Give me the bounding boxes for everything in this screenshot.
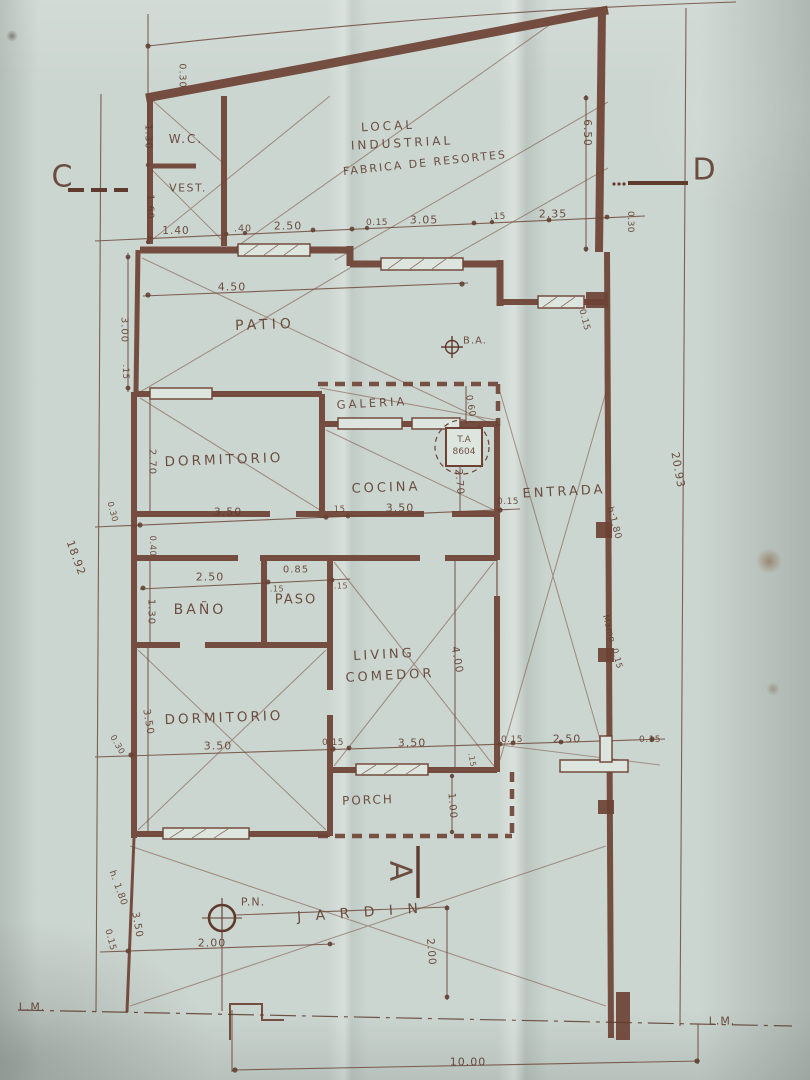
dimension-wc-height: 1.30 bbox=[143, 124, 154, 149]
dimension-vest-width: 1.40 bbox=[162, 225, 189, 237]
room-label-living-line1: LIVING bbox=[353, 646, 415, 664]
dimension-front-015a: 0.15 bbox=[366, 218, 388, 228]
dimension-front-015b: .15 bbox=[490, 212, 506, 222]
section-marker-d: D bbox=[692, 153, 715, 188]
dimension-living-width: 3.50 bbox=[398, 737, 427, 750]
dimension-patio-height: 3.00 bbox=[119, 317, 130, 343]
dimension-local-305: 3.05 bbox=[410, 214, 439, 227]
symbol-label-pn: P.N. bbox=[241, 896, 265, 909]
room-label-porch: PORCH bbox=[342, 792, 394, 808]
dimension-bottom-015a: 0.15 bbox=[322, 738, 344, 748]
dimension-top-left-030: 0.30 bbox=[177, 63, 188, 88]
room-label-patio: PATIO bbox=[235, 316, 295, 334]
section-marker-c: C bbox=[52, 160, 73, 195]
blueprint-sheet: W.C.VEST.LOCALINDUSTRIALFABRICA DE RESOR… bbox=[0, 0, 810, 1080]
room-label-paso: PASO bbox=[275, 593, 317, 608]
dimension-pn-offset-y: 2.00 bbox=[424, 938, 438, 966]
property-line-label-lm-left: L.M. bbox=[19, 1001, 46, 1014]
dimension-patio-width: 4.50 bbox=[218, 281, 247, 294]
dimension-bottom-015c: 0.15 bbox=[639, 735, 661, 745]
dimension-cocina-015: 0.15 bbox=[497, 497, 519, 507]
room-label-bano: BAÑO bbox=[174, 602, 227, 618]
dimension-dorm2-width: 3.50 bbox=[204, 740, 233, 753]
dimension-dorm1-height: 2.70 bbox=[147, 449, 158, 475]
label-building-use-line1: LOCAL bbox=[361, 118, 416, 135]
room-label-wc: W.C. bbox=[169, 132, 204, 146]
symbol-label-ta-line2: 8604 bbox=[453, 447, 476, 457]
dimension-cocina-width: 3.50 bbox=[386, 502, 415, 515]
dimension-bottom-015b: 0.15 bbox=[501, 735, 523, 745]
ba-drain-symbol bbox=[441, 336, 463, 358]
dimension-patio-015: .15 bbox=[120, 364, 130, 379]
dimension-bano-height: 1.30 bbox=[146, 599, 157, 625]
dimension-right-030: 0.30 bbox=[625, 211, 635, 233]
dimension-cocina-height: 2.70 bbox=[452, 468, 465, 495]
dimension-paso-015a: .15 bbox=[270, 585, 284, 594]
section-lines bbox=[68, 182, 688, 898]
dimension-porch-height: 1.00 bbox=[445, 792, 458, 819]
property-line-label-lm-right: L.M. bbox=[709, 1015, 736, 1028]
dimension-left-040: 0.40 bbox=[147, 536, 157, 557]
symbol-label-ta-line1: T.A bbox=[457, 435, 470, 445]
dimension-front-250: 2.50 bbox=[274, 220, 303, 233]
dimension-paso-015b: .15 bbox=[334, 582, 348, 591]
property-line bbox=[18, 1010, 792, 1026]
dimension-mid-015: .15 bbox=[330, 505, 345, 515]
dimension-local-height: 6.50 bbox=[581, 119, 593, 146]
symbol-label-ba: B.A. bbox=[463, 336, 487, 347]
dimension-bano-width: 2.50 bbox=[196, 571, 225, 584]
pn-level-symbol bbox=[202, 898, 242, 938]
dimension-front-040: .40 bbox=[234, 224, 252, 235]
dimension-local-235: 2.35 bbox=[539, 208, 568, 221]
dimension-gate-width: 2.50 bbox=[553, 733, 582, 746]
dimension-paso-width: 0.85 bbox=[283, 565, 309, 576]
section-marker-a: A bbox=[383, 861, 418, 882]
room-label-cocina: COCINA bbox=[351, 479, 420, 496]
room-label-vest: VEST. bbox=[169, 182, 207, 195]
dimension-pn-offset-x: 2.00 bbox=[198, 937, 227, 950]
dimension-dorm1-width: 3.50 bbox=[214, 506, 243, 519]
dimension-lot-width: 10.00 bbox=[450, 1056, 487, 1069]
dimension-vest-height: 1.60 bbox=[145, 194, 156, 219]
